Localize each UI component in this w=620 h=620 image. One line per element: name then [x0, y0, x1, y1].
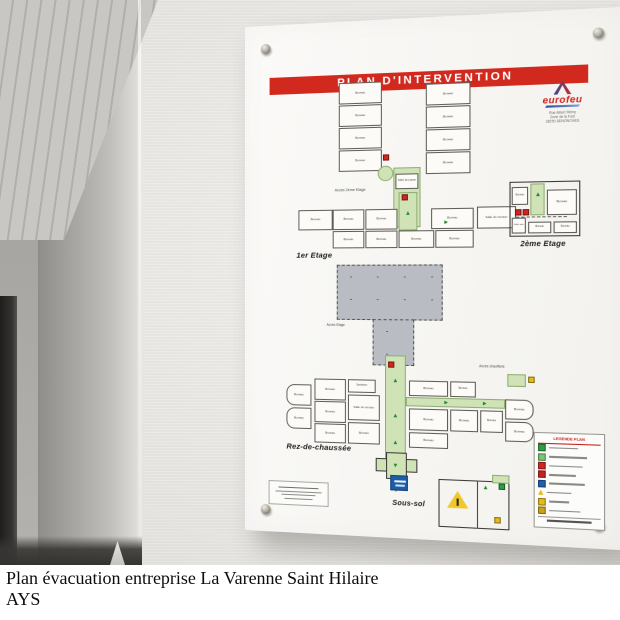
cartouche-text-line	[281, 494, 315, 497]
plan-text: Bureau	[325, 431, 335, 435]
room: Bureau	[426, 151, 471, 174]
room: Bureau	[505, 421, 533, 442]
plan-text: Bureau	[325, 388, 335, 392]
photo-of-wall: PLAN D'INTERVENTION eurofeu Rue Albert R…	[0, 0, 620, 565]
floor-plan-roof-access: Accès Etage	[337, 260, 449, 366]
extinguisher-icon	[523, 209, 530, 215]
plan-text: Bureau	[423, 439, 433, 443]
plan-text: Bureau	[443, 138, 453, 142]
legend-label-text	[549, 483, 585, 486]
evacuation-arrow-icon: ▲	[441, 398, 448, 407]
connector-line	[477, 480, 478, 528]
room: Bureau	[426, 105, 471, 128]
plan-text: Bureau	[556, 200, 567, 204]
technical-area	[337, 264, 443, 320]
plan-text: Bureau	[516, 194, 524, 197]
room: Bureau	[431, 208, 474, 229]
legend-icon	[538, 480, 546, 488]
room: Bureau	[554, 221, 577, 233]
plan-label: Sous-sol	[392, 500, 425, 509]
cartouche-text-line	[284, 497, 312, 500]
room: Bureau	[547, 189, 577, 215]
plan-text: Bureau	[447, 217, 457, 221]
room: Bureau	[426, 128, 471, 151]
evacuation-arrow-icon: ▲	[481, 485, 490, 493]
plan-text: Bureau	[311, 218, 321, 221]
plan-label: Accès Etage	[327, 324, 345, 328]
plan-text: Bureau	[344, 218, 354, 221]
room: Bureau	[450, 409, 478, 432]
room: Bureau	[409, 408, 448, 431]
evacuation-arrow-icon: ▲	[441, 218, 448, 226]
alarm-icon	[494, 517, 501, 524]
room: Bureau	[450, 381, 476, 397]
floor-plan-basement: Sous-sol▲	[388, 469, 518, 540]
evacuation-arrow-icon: ▲	[391, 460, 399, 468]
caption-subtitle: AYS	[6, 589, 40, 610]
legend: LEGENDE PLAN	[534, 432, 606, 531]
room: Bureau	[480, 410, 503, 433]
plan-text: 1er Etage	[296, 252, 332, 261]
evacuation-corridor	[507, 374, 526, 387]
room: Bureau	[333, 231, 365, 249]
extinguisher-icon	[388, 361, 394, 367]
room: Bureau	[339, 81, 382, 104]
legend-icon	[538, 471, 546, 479]
room: Salle de réunion	[348, 394, 380, 420]
stairwell	[378, 166, 394, 182]
plan-text: Bureau	[443, 92, 453, 96]
legend-label-text	[549, 474, 576, 477]
plan-text: Bureau	[344, 238, 354, 241]
room: Bureau	[314, 401, 345, 423]
page: PLAN D'INTERVENTION eurofeu Rue Albert R…	[0, 0, 620, 620]
extinguisher-icon	[515, 209, 522, 215]
room: Bureau	[286, 384, 311, 406]
room: Bureau	[339, 104, 382, 127]
plan-text: Sanitaires	[356, 385, 367, 388]
plan-text: Bureau	[376, 218, 386, 222]
legend-label-text	[549, 447, 578, 450]
plan-text: Salle info	[514, 224, 524, 227]
room: Salle de pause	[395, 173, 418, 189]
plan-text: Bureau	[355, 91, 365, 95]
plan-text: Bureau	[359, 431, 369, 435]
plan-text: Bureau	[294, 393, 304, 397]
room: Bureau	[528, 222, 551, 234]
floor-plan-ground-floor: BureauBureauBureauBureauBureauSanitaires…	[286, 354, 533, 485]
plan-text: Accès chaufferie	[479, 365, 504, 369]
assembly-point-sign	[390, 475, 408, 491]
plan-text: Bureau	[459, 419, 469, 423]
room: Bureau	[314, 423, 345, 443]
plan-text: Bureau	[443, 115, 453, 119]
plan-text: Salle de pause	[398, 180, 416, 183]
room: Bureau	[365, 230, 397, 248]
wall-corner-highlight	[138, 0, 141, 565]
plan-text: Bureau	[443, 161, 453, 165]
room: Bureau	[286, 407, 311, 429]
plan-text: Salle de réunion	[485, 216, 507, 219]
room: Bureau	[512, 187, 528, 205]
plan-text: Rez-de-chaussée	[286, 442, 351, 453]
caption-title: Plan évacuation entreprise La Varenne Sa…	[6, 568, 379, 589]
room: Bureau	[333, 209, 365, 230]
plan-text: Bureau	[294, 416, 304, 420]
evacuation-arrow-icon: ▲	[480, 399, 488, 408]
plan-text: Bureau	[561, 226, 570, 229]
plan-label: 1er Etage	[296, 252, 332, 261]
plan-text: Bureau	[514, 430, 525, 434]
plan-text: Bureau	[535, 226, 544, 229]
plan-text: Sous-sol	[392, 500, 425, 509]
evacuation-arrow-icon: ▲	[534, 192, 543, 200]
floor-plan-second-floor: ▲BureauBureauSalle infoBureauBureau2ème …	[509, 180, 587, 253]
extinguisher-icon	[402, 194, 408, 200]
cartouche-text-line	[278, 486, 318, 489]
plan-text: Bureau	[411, 237, 421, 240]
room: Bureau	[505, 399, 533, 420]
legend-label-text	[549, 456, 587, 459]
evacuation-arrow-icon: ▲	[391, 440, 399, 448]
plan-text: Bureau	[459, 388, 468, 391]
evacuation-arrow-icon: ▲	[391, 413, 399, 420]
room: Bureau	[365, 209, 397, 230]
plan-text: Bureau	[376, 238, 386, 241]
legend-rows	[538, 443, 601, 517]
plan-label: Accès chaufferie	[479, 365, 504, 369]
extinguisher-icon	[383, 154, 389, 160]
corridor-doorway	[0, 296, 17, 564]
plan-cartouche	[269, 480, 329, 507]
room: Sanitaires	[348, 379, 376, 393]
legend-icon	[538, 444, 546, 452]
legend-icon	[538, 506, 546, 514]
room: Bureau	[298, 210, 332, 231]
plan-text: Bureau	[487, 420, 496, 423]
legend-icon	[538, 497, 546, 505]
legend-icon	[538, 490, 544, 496]
room: Bureau	[314, 378, 345, 400]
exit-icon	[499, 483, 506, 490]
legend-label-text	[549, 465, 582, 468]
room: Bureau	[339, 127, 382, 150]
room: Bureau	[435, 230, 473, 248]
evacuation-arrow-icon: ▲	[391, 378, 399, 385]
evacuation-arrow-icon: ▲	[404, 211, 412, 218]
legend-icon	[538, 453, 546, 461]
plan-text: Bureau	[355, 159, 365, 163]
evacuation-corridor	[492, 475, 509, 484]
room: Bureau	[339, 149, 382, 172]
plan-text: Bureau	[514, 408, 525, 412]
floor-plan-first-floor: BureauBureauBureauBureauBureauBureauBure…	[296, 190, 516, 267]
plan-text: Bureau	[423, 418, 433, 422]
legend-ref-number	[547, 519, 592, 523]
plan-text: Bureau	[355, 114, 365, 118]
plan-text: Accès Etage	[327, 324, 345, 328]
evacuation-corridor	[406, 397, 505, 409]
room: Bureau	[348, 422, 380, 445]
caption-strip: Plan évacuation entreprise La Varenne Sa…	[0, 565, 620, 620]
plan-text: Bureau	[449, 237, 459, 241]
legend-label-text	[547, 492, 571, 495]
room: Bureau	[409, 380, 448, 396]
plan-text: Bureau	[325, 410, 335, 414]
alarm-icon	[528, 377, 535, 383]
plan-label: Rez-de-chaussée	[286, 442, 351, 453]
plan-label: 2ème Etage	[520, 241, 565, 249]
evacuation-plan-plaque: PLAN D'INTERVENTION eurofeu Rue Albert R…	[245, 7, 620, 551]
plan-text: 2ème Etage	[520, 241, 565, 249]
plan-text: Bureau	[423, 387, 433, 391]
plan-text: Bureau	[355, 136, 365, 140]
legend-label-text	[549, 501, 569, 504]
legend-label-text	[549, 510, 580, 513]
room: Bureau	[426, 82, 471, 106]
room: Salle info	[512, 218, 526, 234]
plan-text: Salle de réunion	[353, 406, 374, 410]
room: Bureau	[409, 432, 448, 449]
legend-icon	[538, 462, 546, 470]
room: Bureau	[399, 230, 435, 248]
